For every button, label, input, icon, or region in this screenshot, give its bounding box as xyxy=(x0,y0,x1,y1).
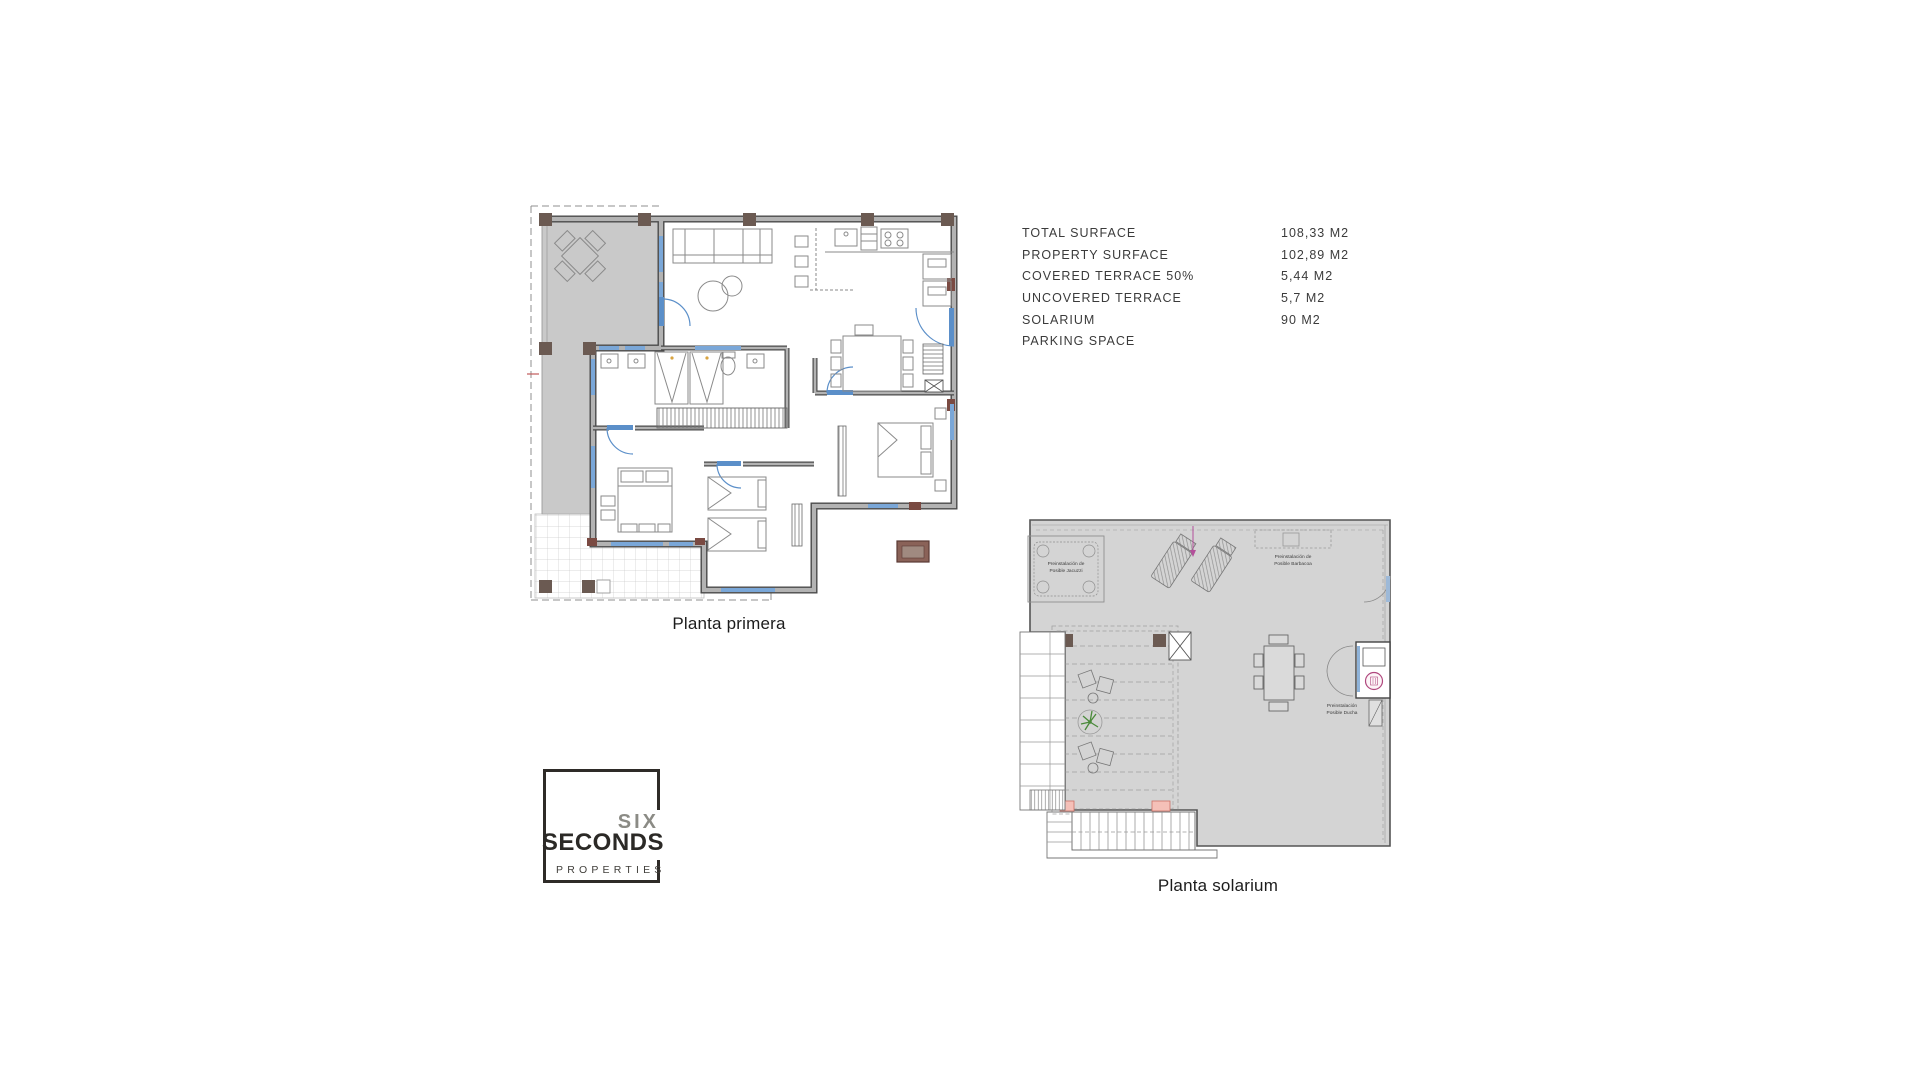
living-room-furniture xyxy=(673,229,772,311)
pillar-outline xyxy=(597,580,610,593)
logo-properties: PROPERTIES xyxy=(556,865,666,876)
plan-title-primera: Planta primera xyxy=(604,614,854,634)
shower-head-dot xyxy=(670,356,673,359)
floor-plan-solarium-drawing: Preinstalación de Posible Jacuzzi Preins… xyxy=(1012,506,1397,866)
floor-plan-primera-drawing xyxy=(525,196,960,616)
stair-hatch xyxy=(923,344,943,374)
table-row: PARKING SPACE xyxy=(1022,331,1362,353)
row-value: 90 M2 xyxy=(1281,310,1321,332)
floor-plan-primera xyxy=(525,196,960,616)
hall-closet-hatch xyxy=(657,408,787,428)
row-value: 5,7 M2 xyxy=(1281,288,1325,310)
staircase xyxy=(1047,812,1217,858)
floorplan-sheet: { "plan_primera": { "title": "Planta pri… xyxy=(0,0,1920,1080)
bathrooms xyxy=(601,352,764,404)
row-label: UNCOVERED TERRACE xyxy=(1022,288,1281,310)
table-row: COVERED TERRACE 50% 5,44 M2 xyxy=(1022,266,1362,288)
kitchen xyxy=(795,227,954,306)
row-label: SOLARIUM xyxy=(1022,310,1281,332)
barbacoa-label-line1: Preinstalación de xyxy=(1275,554,1312,560)
plan-title-solarium: Planta solarium xyxy=(1093,876,1343,896)
left-step-column xyxy=(1020,632,1065,810)
table-row: PROPERTY SURFACE 102,89 M2 xyxy=(1022,245,1362,267)
jacuzzi-label-line2: Posible Jacuzzi xyxy=(1049,568,1082,574)
door-leaves xyxy=(607,297,954,466)
dining-set xyxy=(831,325,913,391)
surface-table: TOTAL SURFACE 108,33 M2 PROPERTY SURFACE… xyxy=(1022,223,1362,353)
table-row: TOTAL SURFACE 108,33 M2 xyxy=(1022,223,1362,245)
jacuzzi-label-line1: Preinstalación de xyxy=(1048,561,1085,567)
x-box xyxy=(925,380,943,392)
row-label: PARKING SPACE xyxy=(1022,331,1281,353)
shower-head-dot xyxy=(705,356,708,359)
bedroom-wardrobe xyxy=(838,426,846,496)
plant xyxy=(1078,710,1102,734)
ac-unit xyxy=(897,541,929,562)
interior-walls xyxy=(593,348,954,464)
right-bedroom xyxy=(878,408,946,491)
logo-seconds: SECONDS xyxy=(542,831,664,855)
row-value: 108,33 M2 xyxy=(1281,223,1349,245)
row-label: COVERED TERRACE 50% xyxy=(1022,266,1281,288)
patio-grid xyxy=(535,514,704,598)
master-bedroom xyxy=(601,468,672,532)
ducha-label-line1: Preinstalación xyxy=(1327,703,1357,709)
barbacoa-label-line2: Posible Barbacoa xyxy=(1274,561,1312,567)
floor-plan-solarium: Preinstalación de Posible Jacuzzi Preins… xyxy=(1012,506,1397,866)
twin-room-wardrobe xyxy=(792,504,802,546)
row-label: TOTAL SURFACE xyxy=(1022,223,1281,245)
table-row: SOLARIUM 90 M2 xyxy=(1022,310,1362,332)
row-label: PROPERTY SURFACE xyxy=(1022,245,1281,267)
row-value: 102,89 M2 xyxy=(1281,245,1349,267)
six-seconds-logo: SIX SECONDS PROPERTIES xyxy=(543,769,660,883)
x-box-solarium xyxy=(1169,632,1191,660)
row-value: 5,44 M2 xyxy=(1281,266,1333,288)
table-row: UNCOVERED TERRACE 5,7 M2 xyxy=(1022,288,1362,310)
shower-tray xyxy=(1369,700,1382,726)
ducha-label-line2: Posible Ducha xyxy=(1327,710,1358,716)
